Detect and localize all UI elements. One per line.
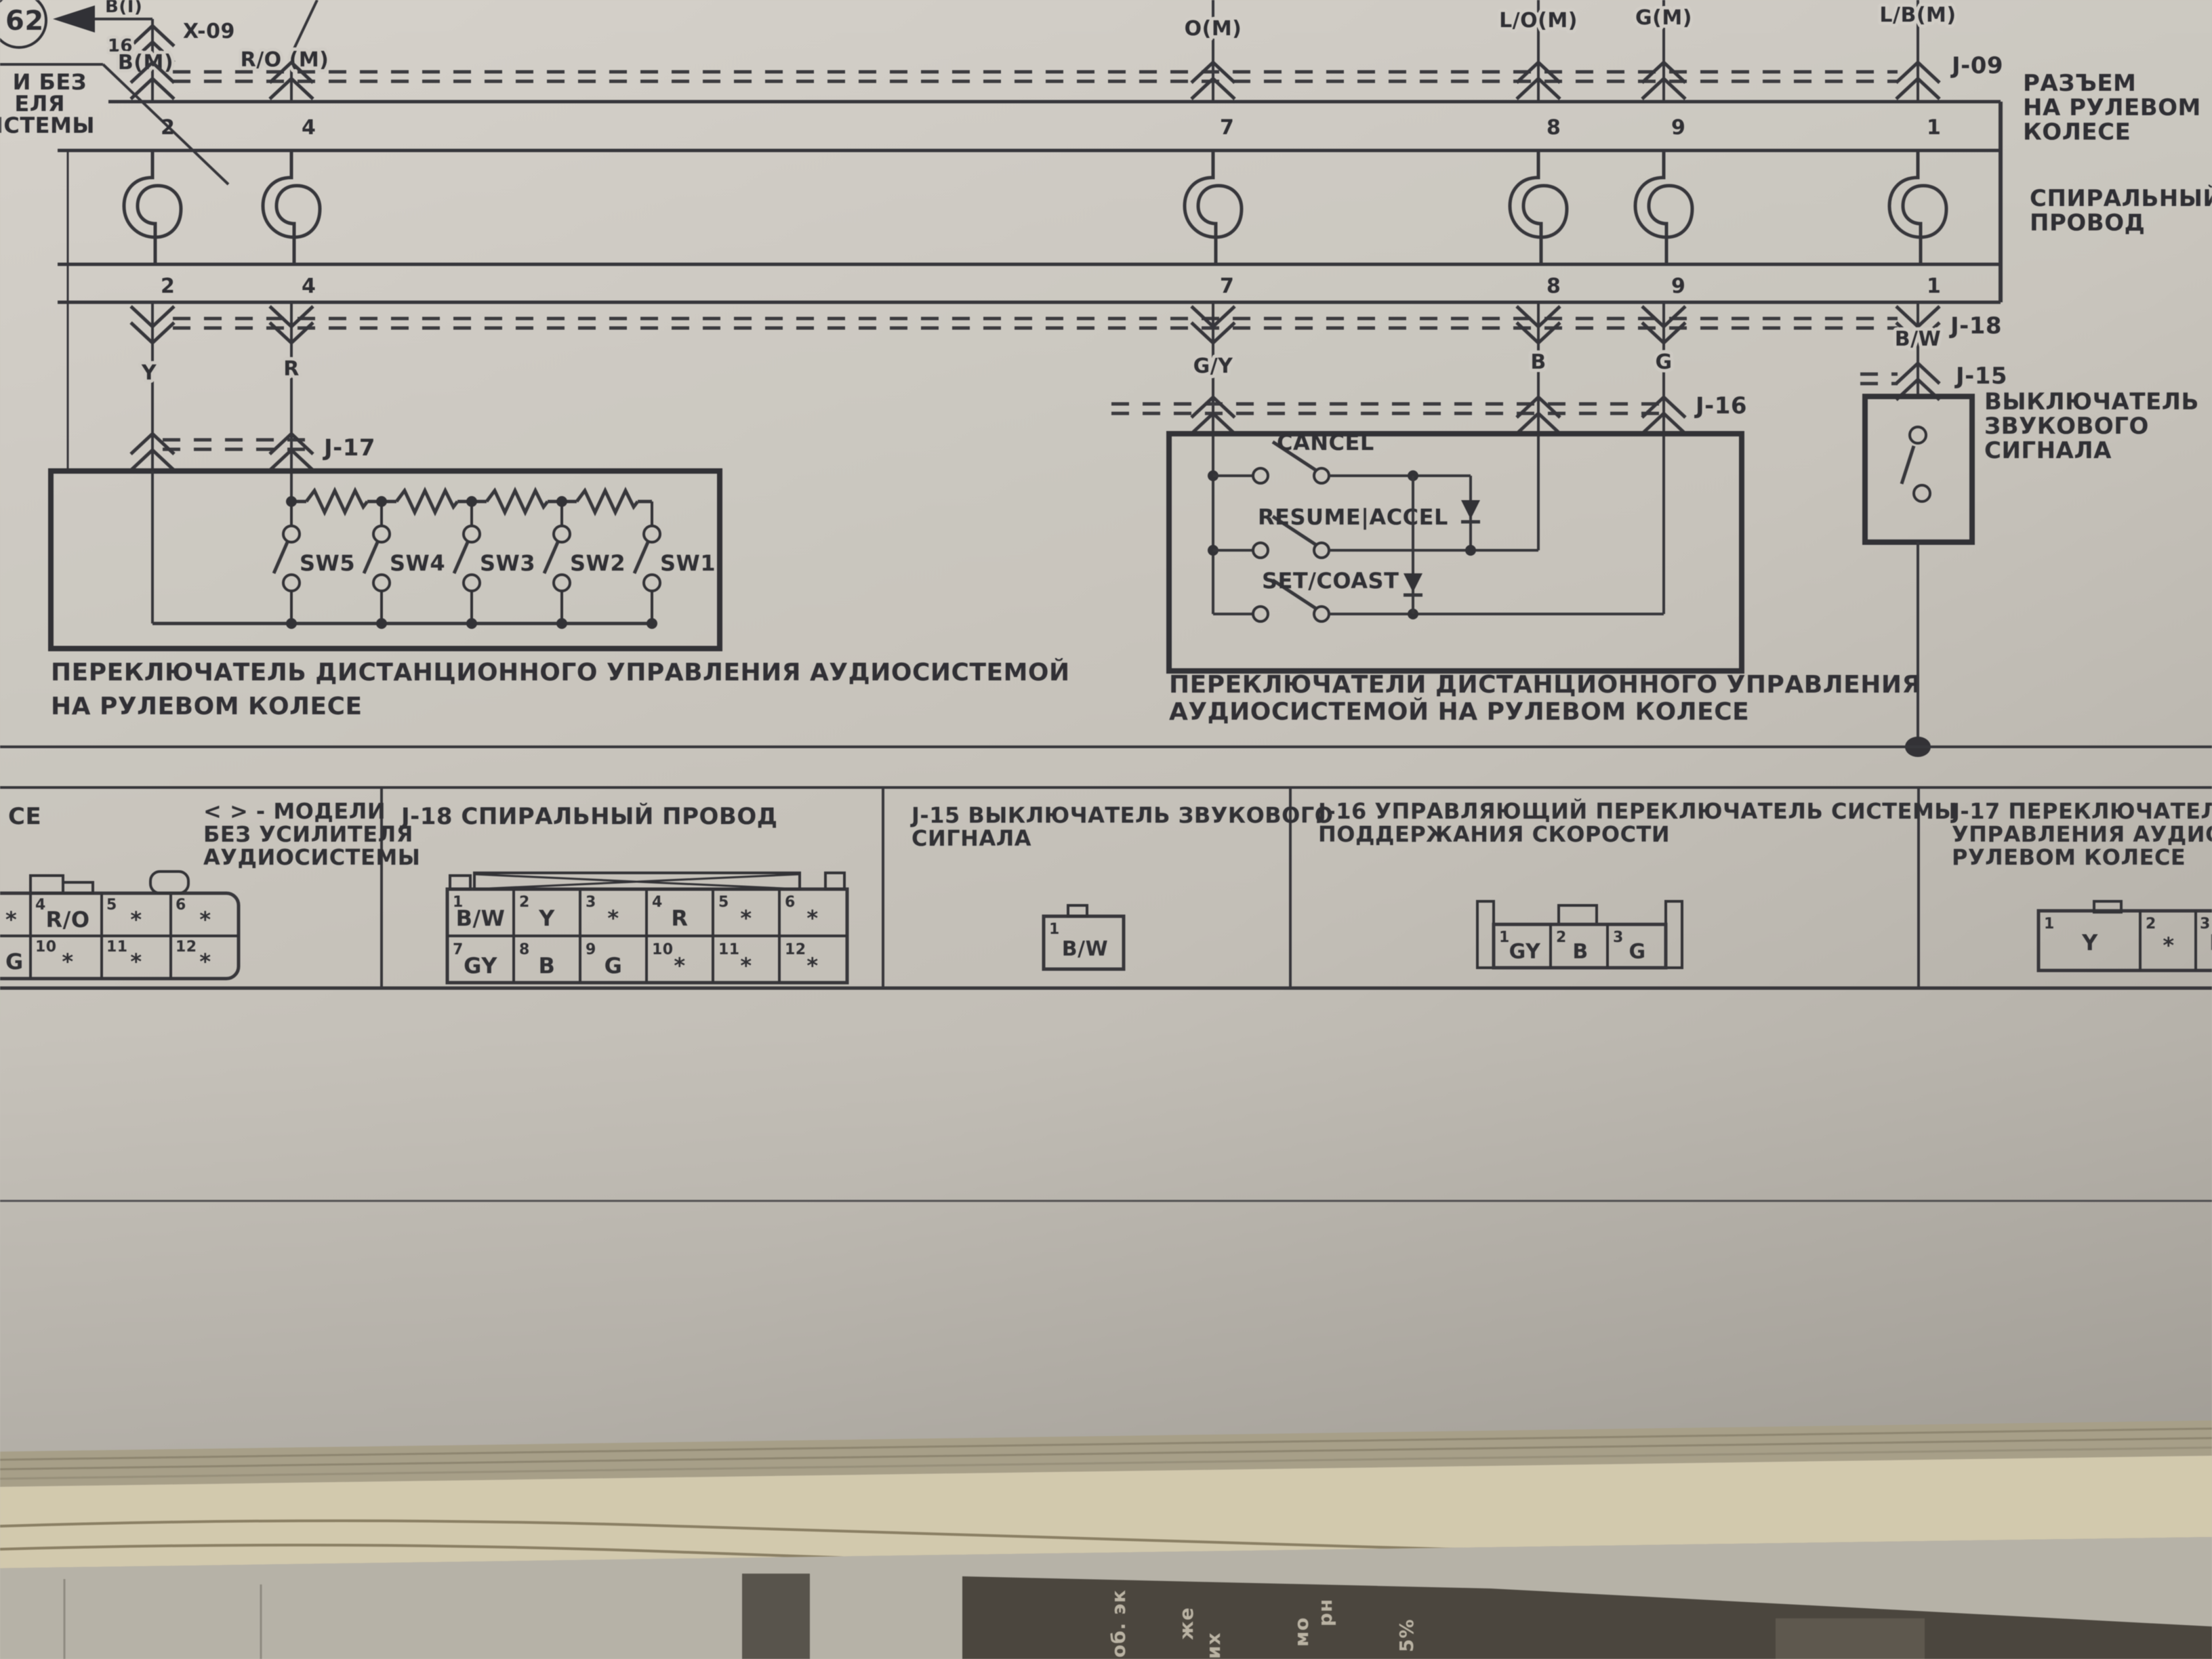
newspaper-text-fragment: 5%: [1395, 1618, 1418, 1652]
newspaper-photo-block: [1776, 1618, 1925, 1659]
photographed-manual-page: 62 B(I) 16 X-09 И БЕЗ ЕЛЯ ИСТЕМЫ B(M) R/…: [0, 0, 2212, 1659]
newspaper-text-fragment: об. эк: [1107, 1589, 1130, 1658]
newspaper-text-fragment: же: [1175, 1607, 1197, 1640]
newspaper-text-fragment: рн: [1314, 1599, 1336, 1626]
wiring-diagram-photo: 62 B(I) 16 X-09 И БЕЗ ЕЛЯ ИСТЕМЫ B(M) R/…: [0, 0, 2212, 1659]
newspaper-text-fragment: их: [1202, 1632, 1225, 1659]
newspaper-edge-bar: [742, 1574, 810, 1659]
photo-shading: [0, 0, 2212, 1659]
newspaper-text-fragment: мо: [1290, 1617, 1313, 1647]
